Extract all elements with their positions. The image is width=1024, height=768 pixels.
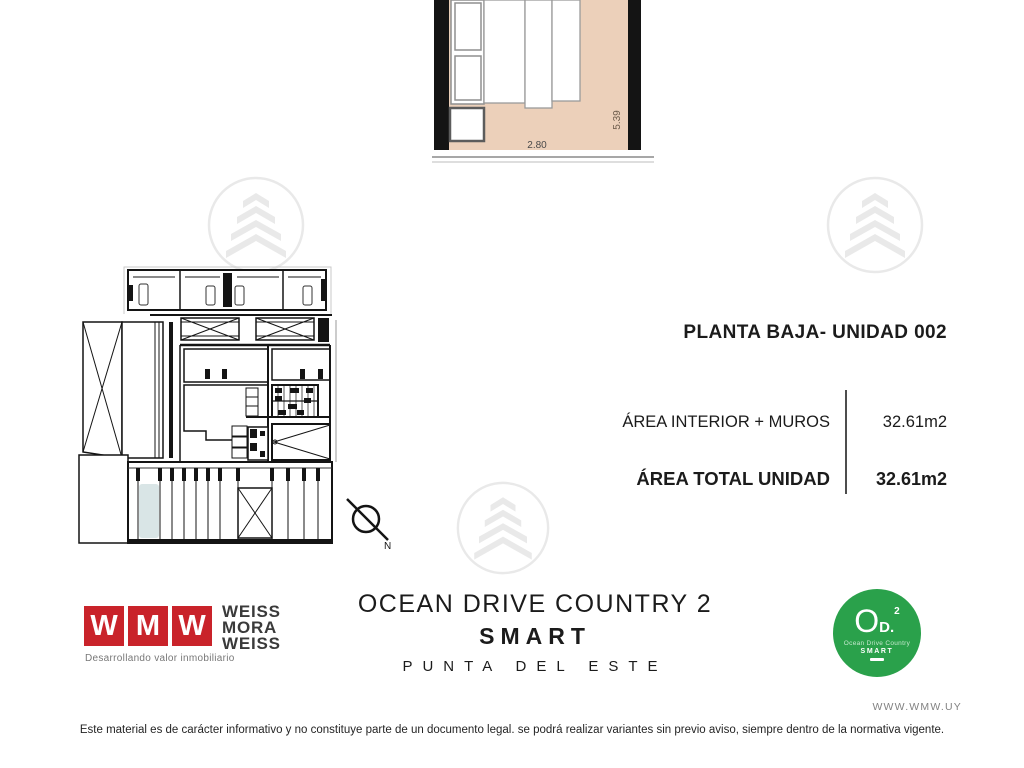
nightstand (450, 108, 484, 141)
building-floor-plan: N (75, 265, 405, 555)
watermark-logo (206, 175, 306, 275)
badge-smart-label: SMART (861, 648, 894, 655)
area-interior-value: 32.61m2 (883, 413, 947, 432)
badge-underline (870, 658, 884, 661)
top-rooms (128, 270, 326, 310)
flyer-page: 2.80 5.39 (0, 0, 1024, 768)
wmw-tagline: Desarrollando valor inmobiliario (85, 653, 235, 664)
project-subtitle: SMART (320, 623, 750, 650)
project-location: PUNTA DEL ESTE (320, 658, 750, 675)
north-arrow: N (347, 499, 391, 552)
page-title: PLANTA BAJA- UNIDAD 002 (683, 322, 947, 344)
wmw-name-line: WEISS (222, 636, 281, 652)
od2-badge: O D. 2 Ocean Drive Country SMART (833, 589, 921, 677)
shafts (150, 315, 332, 342)
website-url: WWW.WMW.UY (872, 701, 962, 713)
highlighted-unit-002 (139, 484, 159, 538)
wmw-logo-letter: W (84, 606, 124, 646)
area-total-value: 32.61m2 (876, 469, 947, 490)
badge-letter-d: D. (879, 620, 894, 637)
badge-letter-o: O (854, 605, 879, 637)
bed (484, 0, 580, 108)
wmw-logo-letter: M (128, 606, 168, 646)
project-name: OCEAN DRIVE COUNTRY 2 (320, 590, 750, 619)
dimension-width-label: 2.80 (527, 140, 547, 151)
badge-project-name: Ocean Drive Country (844, 640, 910, 647)
area-table-divider (845, 390, 847, 494)
project-title-block: OCEAN DRIVE COUNTRY 2 SMART PUNTA DEL ES… (320, 590, 750, 675)
legal-disclaimer: Este material es de carácter informativo… (0, 724, 1024, 736)
wmw-logo-letter: W (172, 606, 212, 646)
ramp (83, 322, 122, 458)
od2-monogram: O D. 2 (854, 605, 899, 637)
badge-superscript: 2 (894, 607, 900, 617)
wmw-company-name: WEISS MORA WEISS (222, 604, 281, 652)
watermark-logo (825, 175, 925, 275)
area-interior-label: ÁREA INTERIOR + MUROS (622, 413, 830, 432)
wmw-logo: W M W (84, 606, 212, 646)
section-cut-lines (432, 157, 654, 162)
north-label: N (384, 541, 391, 552)
unit-detail-plan: 2.80 5.39 (430, 0, 655, 166)
dimension-height-label: 5.39 (612, 110, 623, 130)
watermark-logo (455, 480, 551, 576)
wardrobe (451, 0, 484, 104)
units-row (79, 455, 332, 543)
core-corridor (122, 322, 173, 458)
area-total-label: ÁREA TOTAL UNIDAD (636, 468, 830, 490)
